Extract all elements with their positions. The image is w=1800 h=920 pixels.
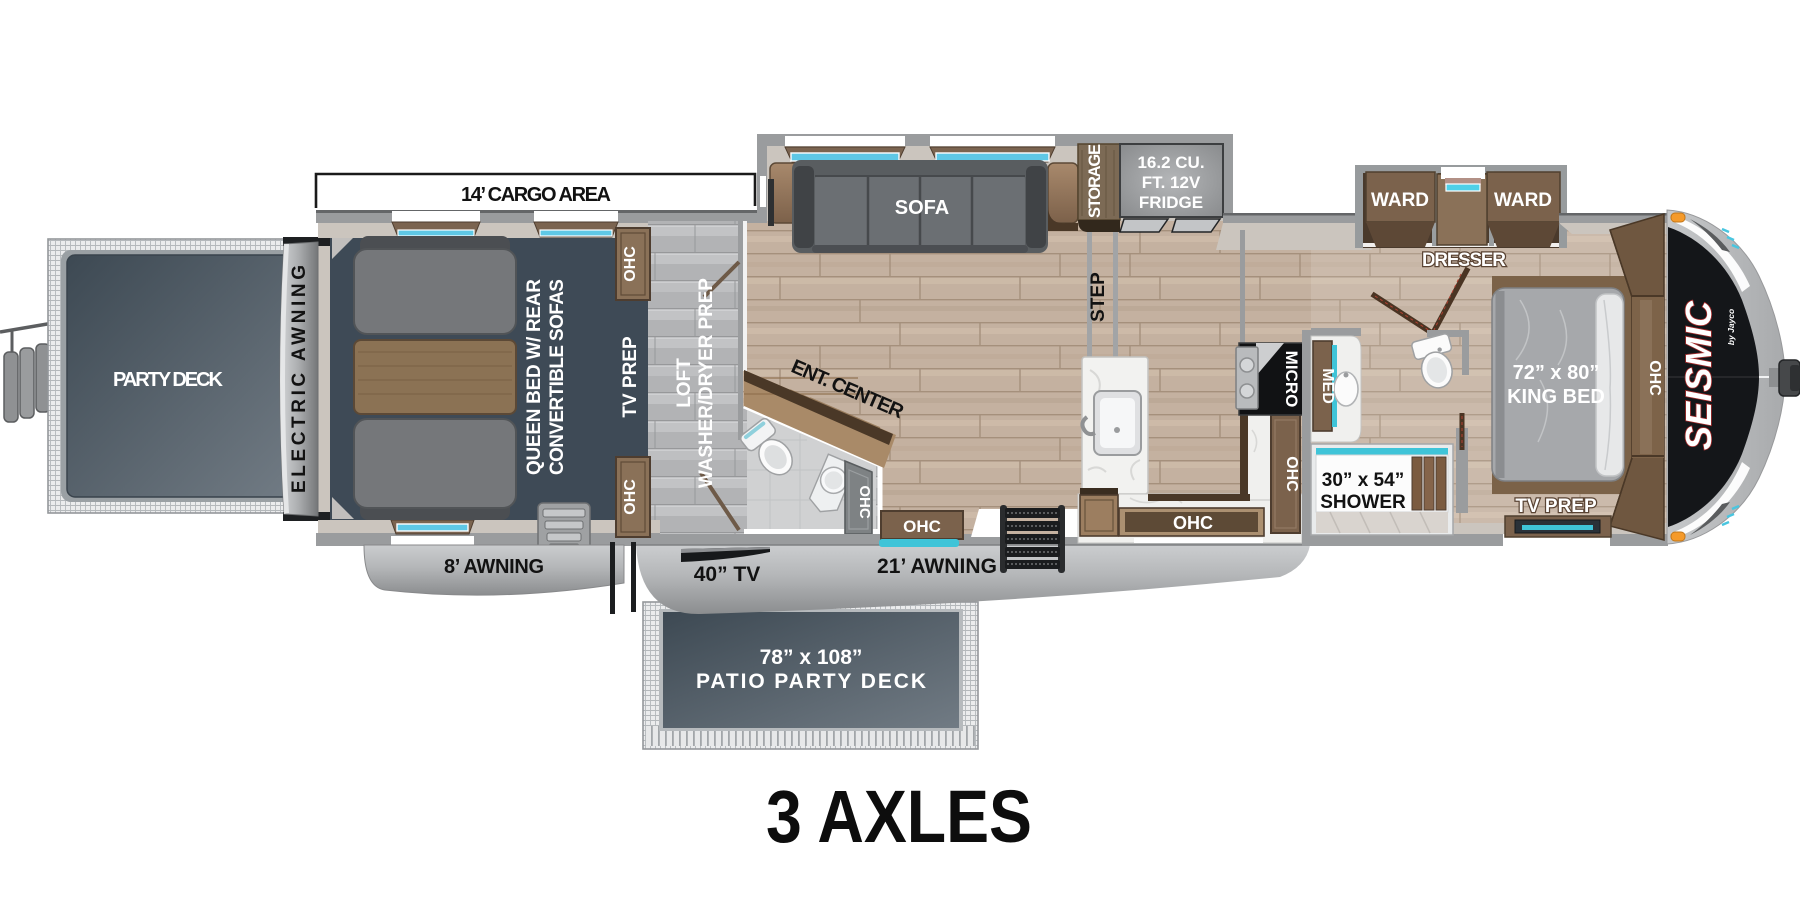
svg-text:WASHER/DRYER PREP: WASHER/DRYER PREP [696,278,717,488]
svg-text:OHC: OHC [622,479,639,515]
svg-text:KING BED: KING BED [1507,386,1605,408]
svg-text:STEP: STEP [1088,272,1109,322]
svg-text:21’ AWNING: 21’ AWNING [877,555,997,578]
svg-text:WARD: WARD [1494,190,1552,211]
svg-text:OHC: OHC [856,485,873,519]
svg-text:by Jayco: by Jayco [1726,309,1736,345]
svg-text:OHC: OHC [903,517,941,536]
svg-text:FRIDGE: FRIDGE [1139,193,1203,212]
svg-text:LOFT: LOFT [674,358,695,408]
svg-text:SEISMIC: SEISMIC [1678,300,1719,450]
svg-text:3 AXLES: 3 AXLES [766,775,1032,858]
svg-text:30” x 54”: 30” x 54” [1322,470,1404,491]
svg-text:MED: MED [1319,368,1336,404]
svg-text:TV PREP: TV PREP [620,336,641,418]
svg-text:PARTY DECK: PARTY DECK [113,369,224,391]
svg-text:FT. 12V: FT. 12V [1142,173,1201,192]
svg-text:SOFA: SOFA [895,197,949,219]
svg-text:72” x 80”: 72” x 80” [1513,362,1600,384]
svg-text:STORAGE: STORAGE [1086,144,1104,218]
svg-text:OHC: OHC [1173,513,1213,533]
svg-text:TV PREP: TV PREP [1515,496,1597,517]
svg-text:PATIO PARTY DECK: PATIO PARTY DECK [696,670,926,693]
svg-text:MICRO: MICRO [1282,351,1301,408]
svg-text:16.2 CU.: 16.2 CU. [1137,153,1204,172]
svg-text:40” TV: 40” TV [694,563,761,586]
svg-text:WARD: WARD [1371,190,1429,211]
svg-text:8’ AWNING: 8’ AWNING [444,556,544,578]
svg-text:14’ CARGO AREA: 14’ CARGO AREA [461,184,611,206]
svg-text:SHOWER: SHOWER [1320,492,1406,513]
svg-text:QUEEN BED W/ REAR: QUEEN BED W/ REAR [524,279,545,475]
svg-text:DRESSER: DRESSER [1422,250,1506,271]
svg-text:OHC: OHC [622,246,639,282]
svg-text:OHC: OHC [1646,360,1663,396]
svg-text:CONVERTIBLE SOFAS: CONVERTIBLE SOFAS [547,279,568,475]
svg-text:OHC: OHC [1283,456,1300,492]
svg-text:78” x 108”: 78” x 108” [760,646,863,669]
